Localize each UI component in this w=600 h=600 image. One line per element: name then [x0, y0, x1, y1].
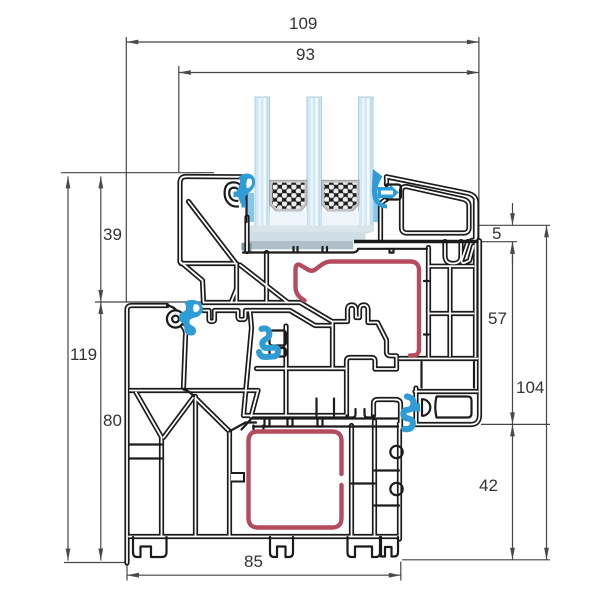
svg-text:42: 42 [479, 476, 498, 495]
svg-text:93: 93 [296, 45, 315, 64]
svg-text:39: 39 [103, 225, 122, 244]
svg-text:104: 104 [516, 378, 544, 397]
svg-text:109: 109 [289, 14, 317, 33]
svg-text:85: 85 [244, 552, 263, 571]
svg-text:119: 119 [70, 345, 97, 364]
svg-text:5: 5 [492, 224, 501, 243]
svg-text:57: 57 [488, 309, 507, 328]
svg-text:80: 80 [103, 411, 122, 430]
